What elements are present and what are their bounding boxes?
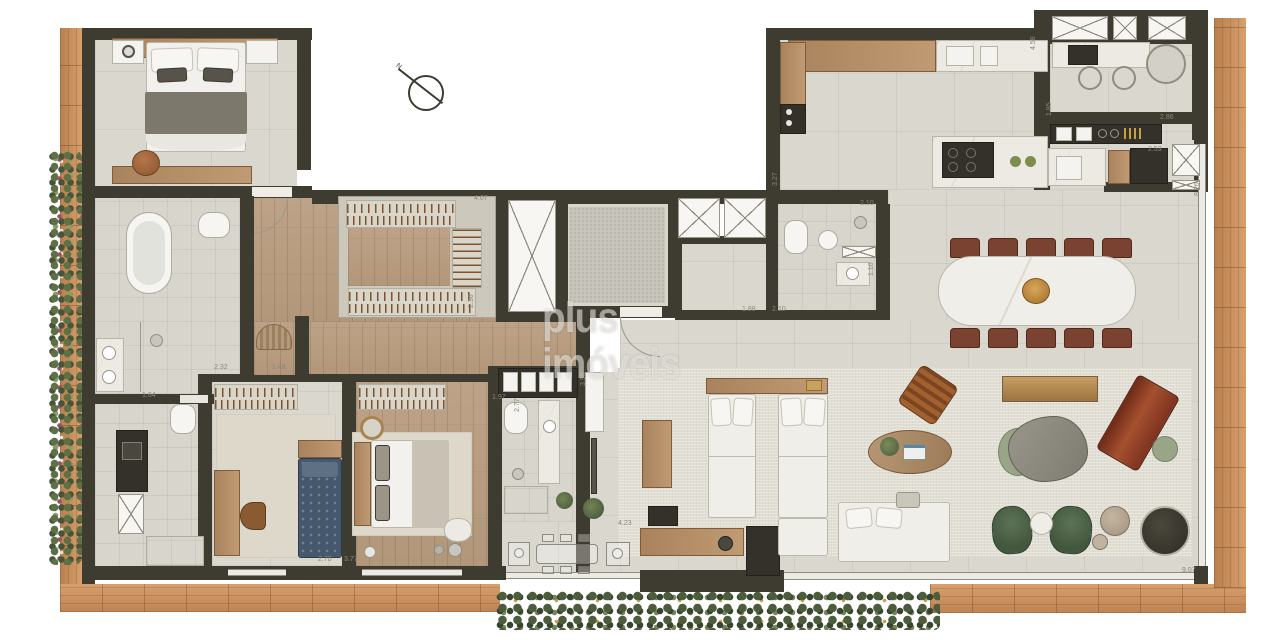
shower-head	[854, 216, 867, 229]
basket	[132, 150, 160, 176]
hedge-bottom	[495, 590, 940, 630]
toilet	[198, 212, 230, 238]
wall	[240, 196, 254, 378]
blanket	[145, 92, 247, 134]
mirror-round	[122, 45, 135, 58]
bed2-pillow	[302, 462, 338, 477]
foyer-floor	[566, 204, 668, 306]
duct-shaft	[1148, 16, 1186, 40]
linen-box	[521, 372, 536, 392]
dining-chair	[950, 238, 980, 258]
vanity	[538, 400, 560, 484]
living-glass-south	[784, 572, 1198, 580]
tray	[806, 380, 822, 391]
closet-rack-top	[346, 200, 456, 228]
wall	[766, 28, 780, 194]
clothes-rack	[214, 384, 298, 410]
ghost-knob	[612, 548, 623, 559]
service-counter	[116, 430, 148, 492]
wall	[1034, 112, 1194, 124]
ghost-stool	[578, 534, 590, 542]
shower-tray	[146, 536, 204, 566]
dining-chair	[1064, 238, 1094, 258]
wine-bottle	[786, 120, 792, 126]
wood-bench	[1002, 376, 1098, 402]
kitchen-counter-wood	[788, 40, 936, 72]
bathtub-inner	[133, 221, 165, 285]
side-table-dark	[1140, 506, 1190, 556]
bed3-blanket	[412, 440, 449, 528]
pouf	[896, 492, 920, 508]
bed-foot-fold	[146, 134, 246, 151]
service-sink	[122, 442, 142, 460]
sofa-pillow	[875, 507, 903, 529]
ghost-stool	[578, 566, 590, 574]
desk	[214, 470, 240, 556]
bowl-green	[1010, 156, 1021, 167]
duct-shaft	[678, 198, 720, 238]
wall	[82, 28, 95, 584]
duct-shaft	[1052, 16, 1108, 40]
sink	[543, 420, 556, 433]
laundry-sink	[1068, 45, 1098, 65]
accent-pillow	[203, 67, 234, 83]
floor-plan-rendering: N 4.072.362.321.481.642.101.103.271.882.…	[0, 0, 1280, 640]
wine-bottle	[786, 109, 792, 115]
floor-lamp	[434, 545, 444, 555]
round-mirror	[360, 416, 384, 440]
grill	[1130, 148, 1168, 184]
pillow	[375, 485, 390, 521]
desk-chair	[240, 502, 266, 530]
wine-rack	[780, 104, 806, 134]
wall	[766, 196, 778, 320]
wall	[295, 316, 309, 378]
clothes-rack	[358, 384, 446, 410]
duct-shaft	[1172, 144, 1200, 176]
dining-chair	[1102, 328, 1132, 348]
wall-post	[1194, 566, 1208, 584]
floor-lamp	[448, 543, 462, 557]
duct-shaft	[724, 198, 766, 238]
wall	[876, 204, 890, 320]
door-gap	[252, 187, 292, 197]
living-glass-east	[1198, 140, 1206, 576]
burner	[1110, 129, 1119, 138]
burner	[1098, 129, 1107, 138]
shower-screen	[140, 322, 141, 392]
table-plant	[880, 437, 899, 456]
side-table-green	[1152, 436, 1178, 462]
window-bedroom2	[228, 569, 286, 576]
bed3-headboard	[354, 442, 371, 526]
deck-bottom-left	[60, 584, 500, 612]
vertical-garden-left	[48, 150, 82, 565]
ghost-stool	[542, 566, 554, 574]
floor-lamp	[364, 546, 376, 558]
counter-sink	[1056, 127, 1072, 141]
deck-right	[1214, 18, 1246, 588]
ghost-stool	[560, 566, 572, 574]
ghost-knob	[514, 548, 524, 558]
mirror	[591, 438, 597, 494]
sink	[102, 370, 116, 384]
burner	[948, 162, 958, 172]
closet-rack-right	[452, 228, 482, 288]
watermark: plus imóveis	[542, 295, 758, 345]
ghost-stool	[542, 534, 554, 542]
plant	[556, 492, 573, 509]
dining-chair	[1102, 238, 1132, 258]
sink	[102, 346, 116, 360]
armchair-green	[990, 505, 1033, 556]
side-table-white	[1030, 512, 1053, 535]
dining-chair	[1064, 328, 1094, 348]
burner	[948, 148, 958, 158]
burner	[966, 148, 976, 158]
vent-shaft	[118, 494, 144, 534]
kitchen-sink	[946, 46, 974, 66]
centerpiece-bowl	[1022, 278, 1050, 304]
sofa-seam	[779, 456, 827, 457]
pillow	[375, 445, 390, 481]
toilet	[170, 404, 196, 434]
washer	[1112, 66, 1136, 90]
plant	[583, 498, 604, 519]
bowl-green	[1025, 156, 1036, 167]
water-tank	[1146, 44, 1186, 84]
burner	[966, 162, 976, 172]
cutting-board	[1108, 150, 1130, 184]
ghost-stool	[560, 534, 572, 542]
kitchen-sink	[980, 46, 998, 66]
door-gap	[180, 395, 208, 403]
wall	[198, 374, 346, 382]
side-table-beige-small	[1092, 534, 1108, 550]
terrace-glass-south	[506, 572, 640, 579]
wall	[766, 190, 888, 204]
sink	[846, 267, 859, 280]
duct-shaft	[1172, 180, 1200, 190]
vent-shaft	[842, 246, 876, 258]
toilet	[504, 402, 528, 434]
support-sink	[1056, 156, 1082, 180]
dining-chair	[1026, 328, 1056, 348]
wall	[766, 28, 1048, 40]
ghost-table	[536, 544, 598, 564]
shower-head	[150, 334, 163, 347]
pouf	[444, 518, 472, 542]
washer	[1078, 66, 1102, 90]
utensils	[1124, 128, 1142, 139]
stone-table	[1008, 416, 1088, 482]
wall	[342, 374, 502, 382]
counter-sink	[1076, 127, 1092, 141]
accent-pillow	[157, 67, 188, 83]
dining-chair	[1026, 238, 1056, 258]
armchair-green	[1048, 505, 1093, 556]
closet-floor	[348, 228, 450, 286]
laundry-counter	[1052, 42, 1150, 68]
wall-post	[1194, 126, 1208, 144]
deck-bottom-right	[930, 584, 1246, 613]
sofa-chaise	[778, 518, 828, 556]
closet-rack-bottom	[348, 288, 476, 316]
sofa-pillow	[780, 397, 803, 426]
wall	[297, 28, 311, 170]
nightstand	[246, 40, 278, 64]
bed2-headboard	[298, 440, 342, 458]
cooktop	[942, 142, 994, 178]
window-bedroom3	[362, 569, 462, 576]
duct-shaft	[1113, 16, 1137, 40]
side-table-beige	[1100, 506, 1130, 536]
sofa-pillow	[803, 397, 826, 426]
dining-chair	[988, 328, 1018, 348]
speaker	[718, 536, 733, 551]
sofa-pillow	[710, 397, 732, 426]
toilet	[784, 220, 808, 254]
tv-cabinet	[642, 420, 672, 488]
dining-chair	[950, 328, 980, 348]
dining-chair	[988, 238, 1018, 258]
sofa-pillow	[845, 507, 873, 530]
tv-drawer	[648, 506, 678, 526]
book	[903, 444, 926, 460]
shower-head	[512, 468, 524, 480]
shower-tray	[504, 486, 548, 514]
bidet	[818, 230, 838, 250]
sofa-seam	[709, 456, 755, 457]
console-cube	[746, 526, 780, 576]
sofa-pillow	[732, 397, 754, 426]
linen-box	[503, 372, 518, 392]
